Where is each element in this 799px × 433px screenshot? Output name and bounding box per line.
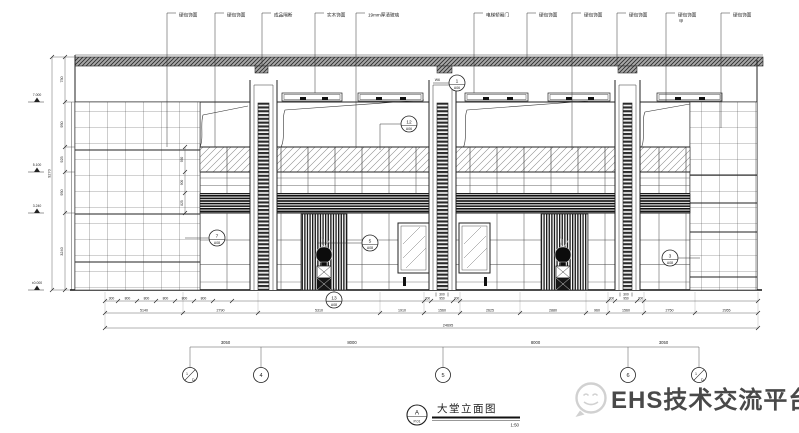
callout-label: 硬包饰面 <box>733 12 752 19</box>
dim-text: 900 <box>180 180 184 186</box>
dim-text: 2750 <box>666 309 674 313</box>
dim-text: 3240 <box>60 247 64 255</box>
ceiling-slab <box>75 55 763 73</box>
dim-text: 2955 <box>723 309 731 313</box>
dim-text: 300 <box>425 297 431 301</box>
level-label: 3.240 <box>33 204 42 208</box>
dim-text: 800 <box>125 297 131 301</box>
axis-bubble-label: 4 <box>259 373 262 379</box>
level-label: 5.100 <box>33 163 42 167</box>
callout-label: 实木饰面 <box>327 12 346 19</box>
dim-text: 950 <box>439 297 445 301</box>
dim-text: 5140 <box>140 309 148 313</box>
dim-text: 300 <box>109 297 115 301</box>
dim-text: 2625 <box>486 309 494 313</box>
axis-bubble-label: 1 <box>695 372 697 376</box>
detail-bubble-sheet: A06 <box>454 86 460 90</box>
dim-text: 950 <box>60 189 64 195</box>
detail-bubble-num: 3 <box>669 253 672 259</box>
callout-label: 硬包饰面 <box>629 12 648 19</box>
dim-text: 960 <box>594 309 600 313</box>
dim-total-text: 9270 <box>48 169 52 177</box>
glass-door-2 <box>459 223 490 286</box>
view-sheet: P.01 <box>414 420 421 424</box>
dim-text: 825 <box>180 200 184 206</box>
axis-bubble-label: D <box>701 378 704 382</box>
dim-text: 5310 <box>315 309 323 313</box>
axis-grid: 3050 8000 8000 3050 1 D 4 5 6 1 D <box>183 340 707 383</box>
drawing-title: 大堂立面图 <box>437 402 497 415</box>
glass-door-1 <box>398 223 429 286</box>
watermark-text: EHS技术交流平台 <box>611 386 799 414</box>
detail-bubble-sheet: A08 <box>214 241 220 245</box>
callout-label-sub: 甲 <box>679 19 683 25</box>
elevation-markers: 7.000 5.100 3.240 ±0.000 <box>28 93 44 290</box>
detail-bubble-num: 5 <box>369 238 372 244</box>
callout-label: 成品隔断 <box>274 12 293 19</box>
axis-bubble-label: 6 <box>626 373 629 379</box>
dim-text: 750 <box>60 76 64 82</box>
axis-dim: 3050 <box>221 340 231 345</box>
detail-bubble-sheet: A08 <box>367 246 373 250</box>
dim-text: 950 <box>60 121 64 127</box>
callout-label: 硬包饰面 <box>227 12 246 19</box>
axis-bubble-label: D <box>192 378 195 382</box>
ceiling-vents <box>282 93 722 101</box>
detail-bubble-num: 12 <box>406 119 412 125</box>
detail-bubble-sheet: A08 <box>667 261 673 265</box>
column-3 <box>615 80 640 290</box>
callout-label: 硬包饰面 <box>539 12 558 19</box>
cad-elevation-sheet: 硬包饰面 硬包饰面 成品隔断 实木饰面 19mm厚清玻璃 电梯轿厢门 硬包饰面 … <box>0 0 799 433</box>
column-2 <box>429 80 456 290</box>
callout-label: 硬包饰面 <box>584 12 603 19</box>
elevation-drawing: 硬包饰面 硬包饰面 成品隔断 实木饰面 19mm厚清玻璃 电梯轿厢门 硬包饰面 … <box>0 0 799 433</box>
right-wall-grid <box>690 102 757 290</box>
door-opening-label: 300 <box>623 293 629 297</box>
drawing-scale: 1:50 <box>510 423 519 428</box>
dim-text: 925 <box>60 156 64 162</box>
dim-text: 800 <box>182 297 188 301</box>
wechat-chat-bubble-icon <box>576 384 606 418</box>
dim-text: 950 <box>623 297 629 301</box>
level-label: 7.000 <box>33 93 42 97</box>
axis-dim: 8000 <box>347 340 357 345</box>
detail-bubble-num: 13 <box>331 295 337 301</box>
dim-text: 1560 <box>622 309 630 313</box>
dim-text: 300 <box>609 297 615 301</box>
left-dimension-chains: 750 950 925 950 3240 9270 <box>48 55 76 292</box>
dim-text: 2790 <box>217 309 225 313</box>
callout-label: 硬包饰面 <box>179 12 198 19</box>
axis-bubble-label: 1 <box>186 372 188 376</box>
watermark: EHS技术交流平台 <box>576 384 799 418</box>
dim-text: 800 <box>201 297 207 301</box>
callout-label: 硬包饰面 <box>678 12 697 19</box>
detail-bubble-sheet: A08 <box>331 303 337 307</box>
bottom-dimension-rows: 300 800 800 800 800 800 300 950 300 300 … <box>103 292 760 330</box>
callout-label: 电梯轿厢门 <box>486 12 509 19</box>
dim-text: 300 <box>638 297 644 301</box>
axis-dim: 8000 <box>531 340 541 345</box>
dim-text: 1560 <box>438 309 446 313</box>
detail-bubble-sheet: A06 <box>406 127 412 131</box>
title-block: A P.01 大堂立面图 1:50 <box>407 402 520 428</box>
level-label: ±0.000 <box>32 281 42 285</box>
dim-text: 950 <box>180 157 184 163</box>
dim-text: 800 <box>163 297 169 301</box>
axis-bubble-label: 5 <box>441 373 444 379</box>
dim-text: 2880 <box>549 309 557 313</box>
dim-text: 300 <box>454 297 460 301</box>
dim-text: 800 <box>144 297 150 301</box>
axis-dim: 3050 <box>659 340 669 345</box>
door-opening-label: 300 <box>439 293 445 297</box>
detail-bubble-prefix: W6 <box>435 78 440 82</box>
dim-total-text: 24695 <box>443 324 454 328</box>
callout-label: 19mm厚清玻璃 <box>368 12 400 19</box>
detail-bubble-num: 1 <box>456 78 459 84</box>
dim-text: 1910 <box>398 309 406 313</box>
column-1 <box>250 80 277 290</box>
left-wall-grid <box>75 102 200 290</box>
detail-bubble-num: 7 <box>216 233 219 239</box>
